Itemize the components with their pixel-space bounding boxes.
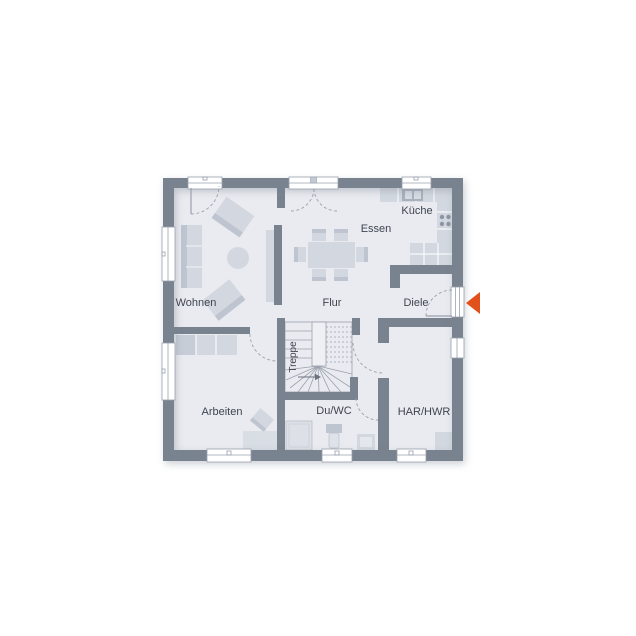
round-side-table (227, 247, 249, 269)
room-label-treppe: Treppe (288, 341, 299, 373)
window (207, 449, 251, 462)
window (162, 227, 175, 281)
room-label-arbeiten: Arbeiten (202, 406, 243, 418)
floor-plan: Wohnen Essen Küche Diele Flur Treppe Arb… (0, 0, 636, 636)
window (397, 449, 426, 462)
window (188, 177, 222, 189)
room-label-du-wc: Du/WC (316, 405, 352, 417)
desk (243, 431, 278, 450)
room-label-flur: Flur (323, 297, 342, 309)
room-label-essen: Essen (361, 223, 392, 235)
entrance-arrow-icon (466, 292, 480, 314)
window (322, 449, 352, 462)
shower (286, 421, 312, 450)
room-label-diele: Diele (403, 297, 428, 309)
floor-plan-canvas: Wohnen Essen Küche Diele Flur Treppe Arb… (0, 0, 636, 636)
room-label-har-hwr: HAR/HWR (398, 406, 451, 418)
sofa (181, 225, 202, 288)
washbasin (357, 434, 375, 450)
entrance-door (451, 287, 464, 317)
utility-unit (435, 432, 452, 450)
office-cabinets (176, 335, 237, 355)
french-door (289, 177, 338, 189)
room-label-kueche: Küche (401, 205, 432, 217)
room-label-wohnen: Wohnen (176, 297, 217, 309)
window (451, 338, 464, 358)
window (402, 177, 431, 189)
sideboard (266, 230, 274, 302)
window (162, 343, 175, 400)
